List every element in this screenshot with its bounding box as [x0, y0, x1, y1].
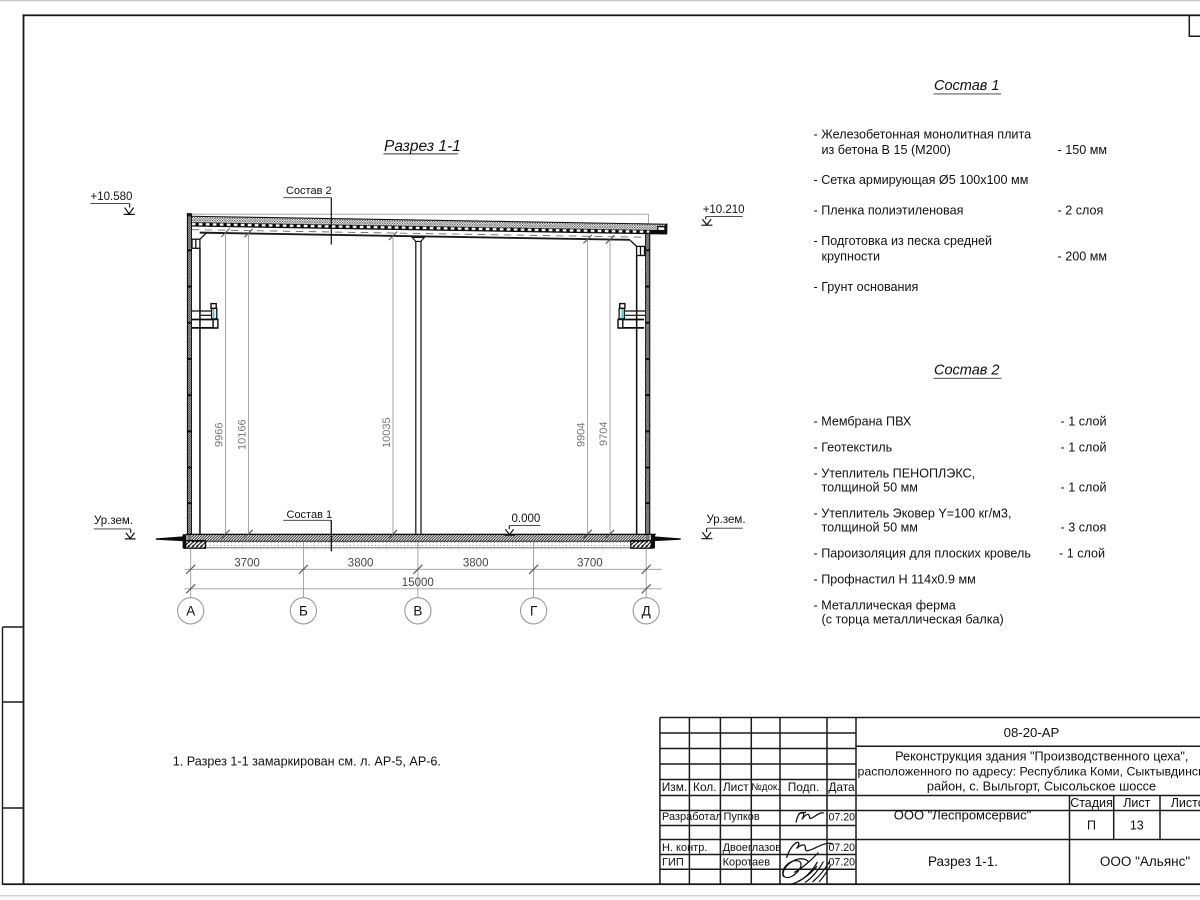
svg-text:- Грунт основания: - Грунт основания — [814, 280, 919, 294]
svg-text:- Сетка армирующая Ø5 100х100: - Сетка армирующая Ø5 100х100 мм — [814, 173, 1029, 187]
svg-text:ГИП: ГИП — [662, 856, 684, 868]
svg-text:0.000: 0.000 — [512, 513, 541, 525]
svg-text:- 3 слоя: - 3 слоя — [1061, 520, 1107, 534]
svg-text:Д: Д — [642, 604, 651, 619]
svg-text:Разрез 1-1: Разрез 1-1 — [384, 138, 461, 155]
svg-text:08-20-АР: 08-20-АР — [1004, 725, 1060, 740]
svg-text:В: В — [413, 604, 422, 619]
svg-text:3700: 3700 — [577, 558, 603, 570]
svg-text:Г: Г — [530, 604, 538, 619]
svg-text:Стадия: Стадия — [1070, 796, 1113, 810]
svg-text:Пупков: Пупков — [724, 811, 760, 823]
svg-text:Двоеглазов: Двоеглазов — [723, 842, 782, 854]
svg-text:- 1 слой: - 1 слой — [1059, 546, 1105, 560]
svg-text:№док.: №док. — [751, 782, 780, 793]
svg-text:- Металлическая ферма: - Металлическая ферма — [814, 598, 956, 612]
svg-text:Состав 1: Состав 1 — [934, 78, 999, 94]
svg-text:- 1 слой: - 1 слой — [1061, 480, 1107, 494]
svg-text:Б: Б — [299, 604, 308, 619]
svg-text:- Пароизоляция для плоских кро: - Пароизоляция для плоских кровель — [814, 546, 1032, 560]
svg-text:Лист: Лист — [1123, 796, 1150, 810]
svg-text:- Геотекстиль: - Геотекстиль — [814, 440, 893, 454]
svg-text:10166: 10166 — [237, 419, 249, 450]
svg-text:Дата: Дата — [828, 780, 855, 794]
svg-text:П: П — [1087, 819, 1096, 833]
svg-text:+10.210: +10.210 — [703, 204, 745, 216]
svg-text:Состав 1: Состав 1 — [287, 509, 333, 521]
svg-text:9704: 9704 — [598, 422, 610, 446]
svg-text:3700: 3700 — [234, 558, 260, 570]
svg-text:Кол.: Кол. — [693, 780, 717, 794]
svg-text:толщиной 50 мм: толщиной 50 мм — [822, 480, 918, 494]
svg-text:ООО "Леспромсервис": ООО "Леспромсервис" — [894, 808, 1032, 823]
svg-text:- 1 слой: - 1 слой — [1061, 440, 1107, 454]
svg-text:Реконструкция здания "Производ: Реконструкция здания "Производственного … — [895, 749, 1188, 763]
svg-text:- Профнастил Н 114х0.9 мм: - Профнастил Н 114х0.9 мм — [814, 572, 976, 586]
svg-text:07.20: 07.20 — [829, 856, 856, 868]
svg-text:10035: 10035 — [381, 417, 393, 448]
svg-text:- 2 слоя: - 2 слоя — [1058, 203, 1104, 217]
svg-text:- 150 мм: - 150 мм — [1058, 143, 1108, 157]
svg-text:3800: 3800 — [348, 558, 374, 570]
svg-text:Ур.зем.: Ур.зем. — [707, 514, 746, 526]
svg-text:Н. контр.: Н. контр. — [662, 842, 707, 854]
svg-text:- Мембрана ПВХ: - Мембрана ПВХ — [814, 414, 912, 428]
svg-text:Лист: Лист — [723, 780, 749, 794]
svg-text:07.20: 07.20 — [829, 812, 856, 824]
svg-text:Разработал: Разработал — [662, 811, 722, 823]
svg-text:крупности: крупности — [822, 249, 881, 263]
svg-text:Разрез 1-1.: Разрез 1-1. — [928, 854, 998, 869]
svg-text:9904: 9904 — [576, 423, 588, 447]
svg-text:- 200 мм: - 200 мм — [1058, 249, 1108, 263]
svg-text:- Утеплитель ПЕНОПЛЭКС,: - Утеплитель ПЕНОПЛЭКС, — [814, 466, 976, 480]
svg-text:из бетона В 15 (М200): из бетона В 15 (М200) — [822, 143, 951, 157]
svg-text:15000: 15000 — [402, 577, 434, 589]
svg-text:(с торца металлическая балка): (с торца металлическая балка) — [822, 612, 1004, 626]
svg-text:1. Разрез 1-1 замаркирован см.: 1. Разрез 1-1 замаркирован см. л. АР-5, … — [173, 755, 441, 769]
svg-text:расположенного по адресу: Респ: расположенного по адресу: Республика Ком… — [858, 764, 1200, 778]
svg-text:9966: 9966 — [214, 423, 226, 447]
svg-text:толщиной 50 мм: толщиной 50 мм — [822, 520, 918, 534]
svg-text:Подп.: Подп. — [788, 780, 820, 794]
svg-text:ООО "Альянс": ООО "Альянс" — [1100, 854, 1190, 869]
svg-text:А: А — [186, 604, 195, 619]
svg-text:Состав 2: Состав 2 — [286, 185, 332, 197]
svg-text:- Пленка полиэтиленовая: - Пленка полиэтиленовая — [814, 203, 964, 217]
svg-text:Состав 2: Состав 2 — [934, 363, 999, 379]
svg-text:Листов: Листов — [1171, 796, 1200, 810]
svg-text:- 1 слой: - 1 слой — [1061, 414, 1107, 428]
svg-text:+10.580: +10.580 — [91, 191, 133, 203]
svg-text:Ур.зем.: Ур.зем. — [94, 515, 133, 527]
svg-text:Изм.: Изм. — [662, 780, 687, 794]
svg-text:район, с. Выльгорт, Сысольское: район, с. Выльгорт, Сысольское шоссе — [927, 779, 1156, 793]
svg-text:3800: 3800 — [463, 558, 489, 570]
svg-text:- Железобетонная монолитная п: - Железобетонная монолитная плита — [814, 128, 1032, 142]
svg-text:- Утеплитель Эковер Y=100 кг/м: - Утеплитель Эковер Y=100 кг/м3, — [814, 506, 1012, 520]
svg-text:Коротаев: Коротаев — [723, 856, 771, 868]
svg-text:13: 13 — [1130, 819, 1144, 833]
svg-text:- Подготовка из песка средней: - Подготовка из песка средней — [814, 234, 993, 248]
